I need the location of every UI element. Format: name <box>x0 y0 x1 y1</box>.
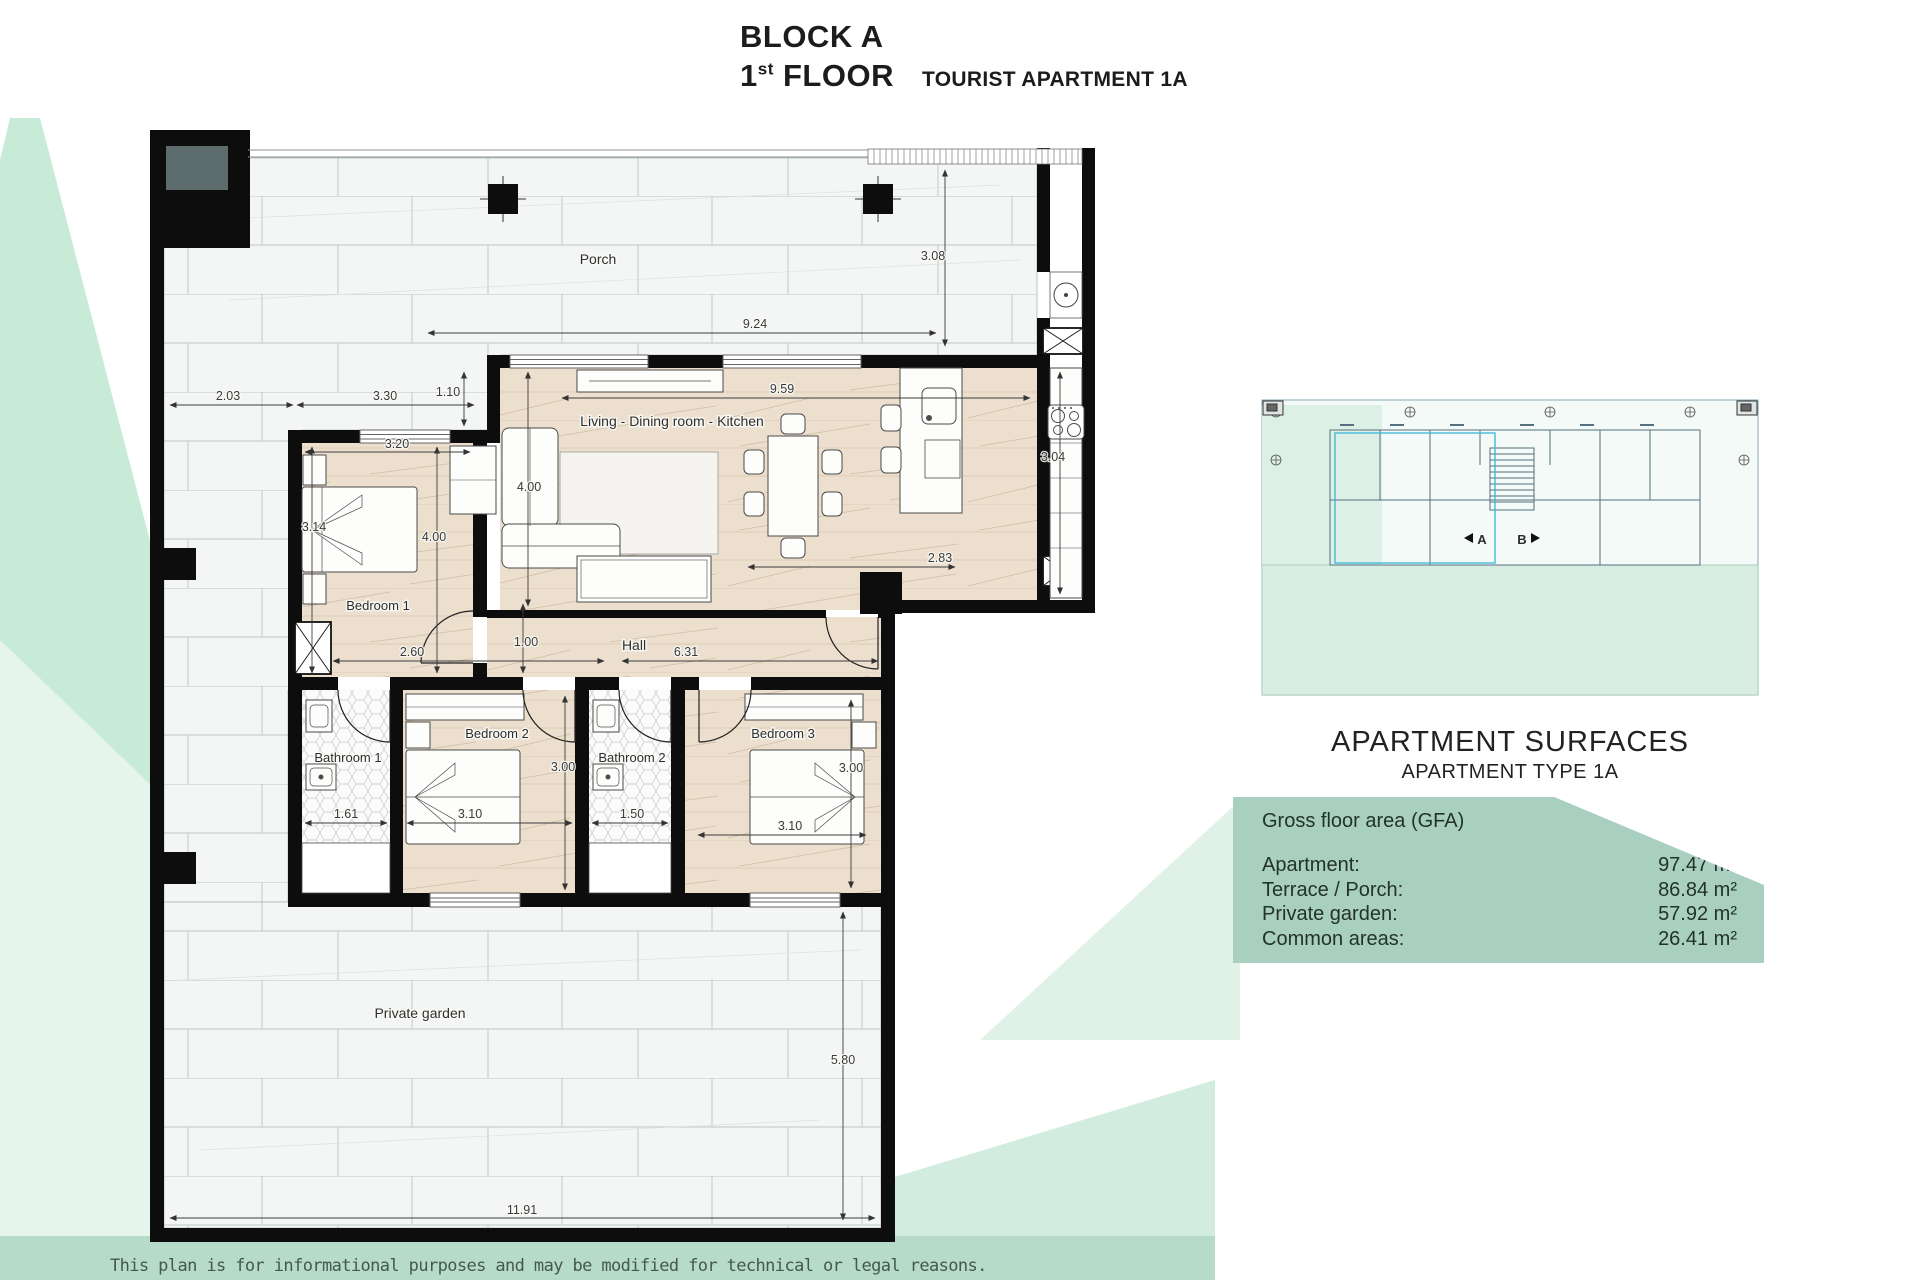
dim-bed3-depth: 3.00 <box>839 761 863 775</box>
label-bedroom1: Bedroom 1 <box>346 598 410 613</box>
floor-title: 1st FLOOR <box>740 57 894 96</box>
dim-bath1-width: 1.61 <box>334 807 358 821</box>
shower <box>302 843 390 893</box>
garden-floor <box>164 902 881 1228</box>
nightstand <box>303 574 326 604</box>
railing-hatch <box>868 149 1082 164</box>
surface-label: Common areas: <box>1262 927 1404 952</box>
porch-column <box>863 184 893 214</box>
block-title: BLOCK A <box>740 18 1188 57</box>
kitchen-island <box>900 368 962 513</box>
dim-hall-length: 6.31 <box>674 645 698 659</box>
label-hall: Hall <box>622 637 646 653</box>
dim-bed1-left: 3.14 <box>302 520 326 534</box>
dim-kitchen-run: 3.04 <box>1041 450 1065 464</box>
key-terrace-band <box>1262 565 1758 695</box>
dim-bed1-width: 3.20 <box>385 437 409 451</box>
surfaces-heading: APARTMENT SURFACES APARTMENT TYPE 1A <box>1255 726 1765 784</box>
surface-value: 57.92 m² <box>1658 902 1737 927</box>
dim-bed1-bottom: 2.60 <box>400 645 424 659</box>
label-garden: Private garden <box>374 1005 465 1021</box>
chair <box>781 414 805 434</box>
dim-living-depth: 4.00 <box>517 480 541 494</box>
key-plan: A B <box>1250 390 1770 705</box>
shower <box>589 843 671 893</box>
kitchen-counter <box>1050 368 1082 598</box>
dining-table <box>768 436 818 536</box>
stool <box>881 405 901 431</box>
dim-garden-depth: 5.80 <box>831 1053 855 1067</box>
wall-column <box>164 852 196 884</box>
label-living: Living - Dining room - Kitchen <box>580 413 764 429</box>
key-unit-b: B <box>1517 532 1526 547</box>
dim-bed1-block: 3.30 <box>373 389 397 403</box>
surfaces-subtitle: APARTMENT TYPE 1A <box>1255 761 1765 784</box>
wall-column <box>164 548 196 580</box>
dim-living-width: 9.59 <box>770 382 794 396</box>
chair <box>822 450 842 474</box>
label-bathroom1: Bathroom 1 <box>314 750 381 765</box>
nightstand <box>406 722 430 748</box>
stove-icon <box>1048 405 1084 439</box>
dim-porch-width: 9.24 <box>743 317 767 331</box>
surface-row: Apartment: 97.47 m² <box>1262 853 1737 878</box>
sideboard <box>577 556 711 602</box>
stool <box>881 447 901 473</box>
label-porch: Porch <box>580 251 617 267</box>
title-block: BLOCK A 1st FLOOR TOURIST APARTMENT 1A <box>740 18 1188 96</box>
dim-bed2-depth: 3.00 <box>551 760 575 774</box>
chair <box>822 492 842 516</box>
surface-row: Terrace / Porch: 86.84 m² <box>1262 878 1737 903</box>
surface-row: Common areas: 26.41 m² <box>1262 927 1737 952</box>
dim-kitchen-gap: 2.83 <box>928 551 952 565</box>
label-bedroom3: Bedroom 3 <box>751 726 815 741</box>
label-bathroom2: Bathroom 2 <box>598 750 665 765</box>
key-unit-a: A <box>1477 532 1487 547</box>
chair <box>744 492 764 516</box>
dim-bed1-depth: 4.00 <box>422 530 446 544</box>
surface-label: Apartment: <box>1262 853 1360 878</box>
nightstand <box>303 455 326 485</box>
chair <box>781 538 805 558</box>
apartment-title: TOURIST APARTMENT 1A <box>922 67 1188 93</box>
dim-side-left: 2.03 <box>216 389 240 403</box>
dim-porch-depth: 3.08 <box>921 249 945 263</box>
dim-bed3-width: 3.10 <box>778 819 802 833</box>
label-bedroom2: Bedroom 2 <box>465 726 529 741</box>
nightstand <box>852 722 876 748</box>
porch-column <box>488 184 518 214</box>
surface-label: Private garden: <box>1262 902 1398 927</box>
dim-hall-width: 1.00 <box>514 635 538 649</box>
dim-bath2-width: 1.50 <box>620 807 644 821</box>
chair <box>744 450 764 474</box>
surface-value: 26.41 m² <box>1658 927 1737 952</box>
dim-bed2-width: 3.10 <box>458 807 482 821</box>
floor-plan: 2.03 3.30 1.10 9.24 3.08 9.59 4.00 3.20 … <box>100 100 1130 1270</box>
dim-garden-width: 11.91 <box>507 1203 537 1217</box>
surface-label: Terrace / Porch: <box>1262 878 1403 903</box>
disclaimer-text: This plan is for informational purposes … <box>110 1256 987 1276</box>
surface-row: Private garden: 57.92 m² <box>1262 902 1737 927</box>
surface-value: 86.84 m² <box>1658 878 1737 903</box>
stair-core-window <box>166 146 228 190</box>
surfaces-title: APARTMENT SURFACES <box>1255 726 1765 759</box>
dim-offset: 1.10 <box>436 385 460 399</box>
